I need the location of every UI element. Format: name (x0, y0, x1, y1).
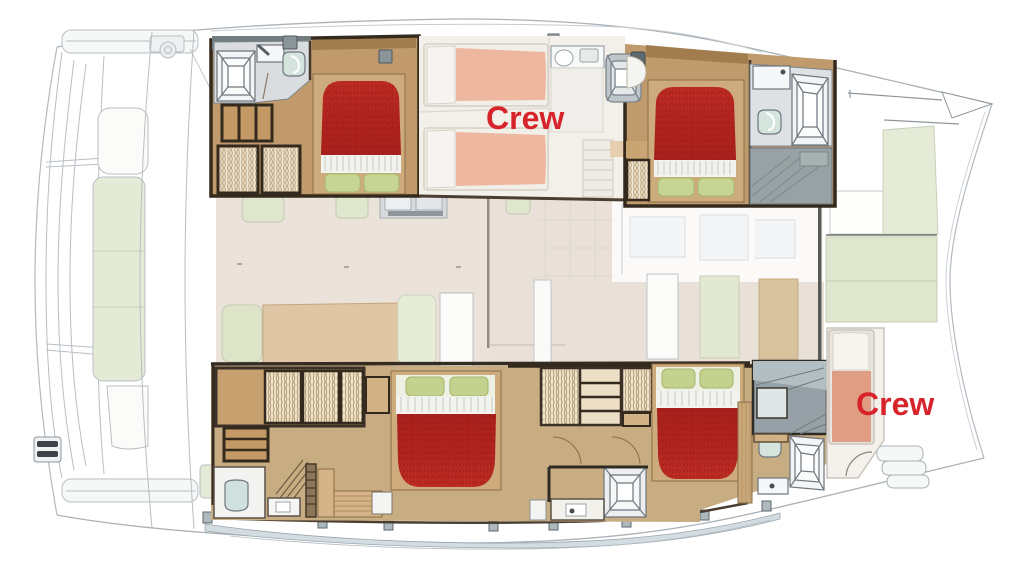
svg-text:Crew: Crew (856, 386, 934, 422)
svg-text:Crew: Crew (486, 100, 564, 136)
